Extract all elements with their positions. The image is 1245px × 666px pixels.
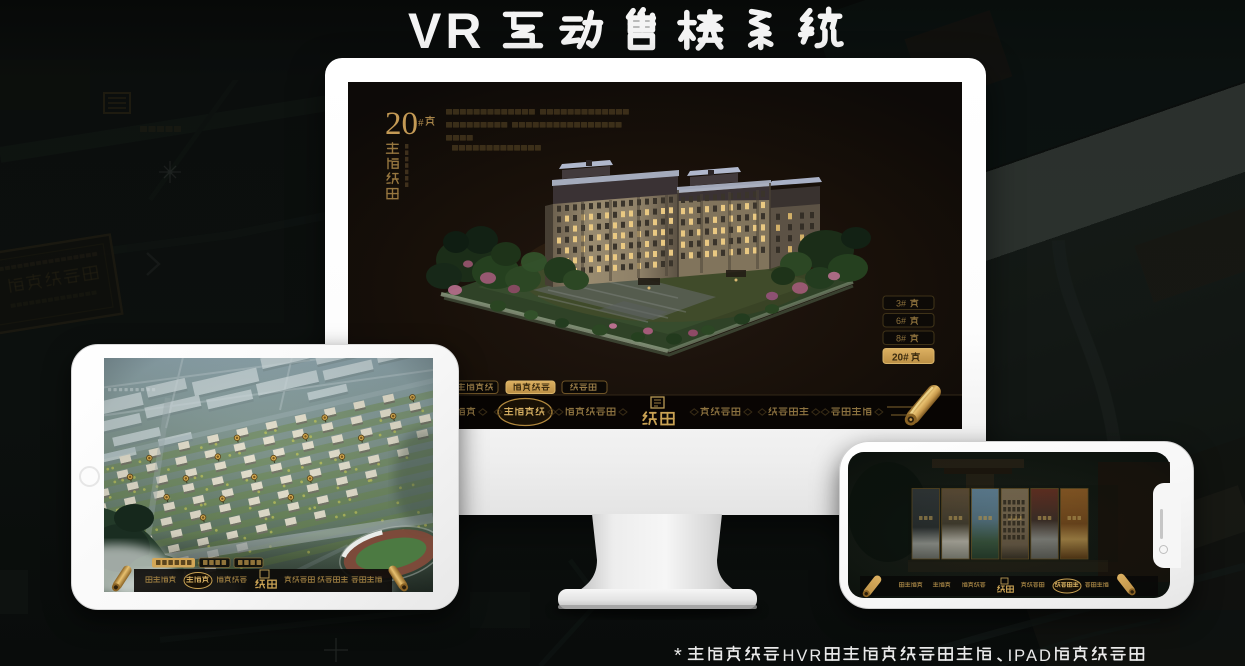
svg-text:3#: 3# — [896, 299, 906, 309]
svg-text:IPAD: IPAD — [1008, 647, 1053, 665]
svg-text:8#: 8# — [896, 334, 906, 344]
svg-text:HVR: HVR — [783, 647, 824, 665]
svg-text:20#: 20# — [892, 353, 909, 364]
svg-text:20: 20 — [385, 106, 418, 142]
svg-text:*: * — [674, 645, 682, 666]
svg-text:VR: VR — [408, 3, 485, 59]
svg-text:#: # — [418, 117, 424, 129]
svg-text:6#: 6# — [896, 316, 906, 326]
